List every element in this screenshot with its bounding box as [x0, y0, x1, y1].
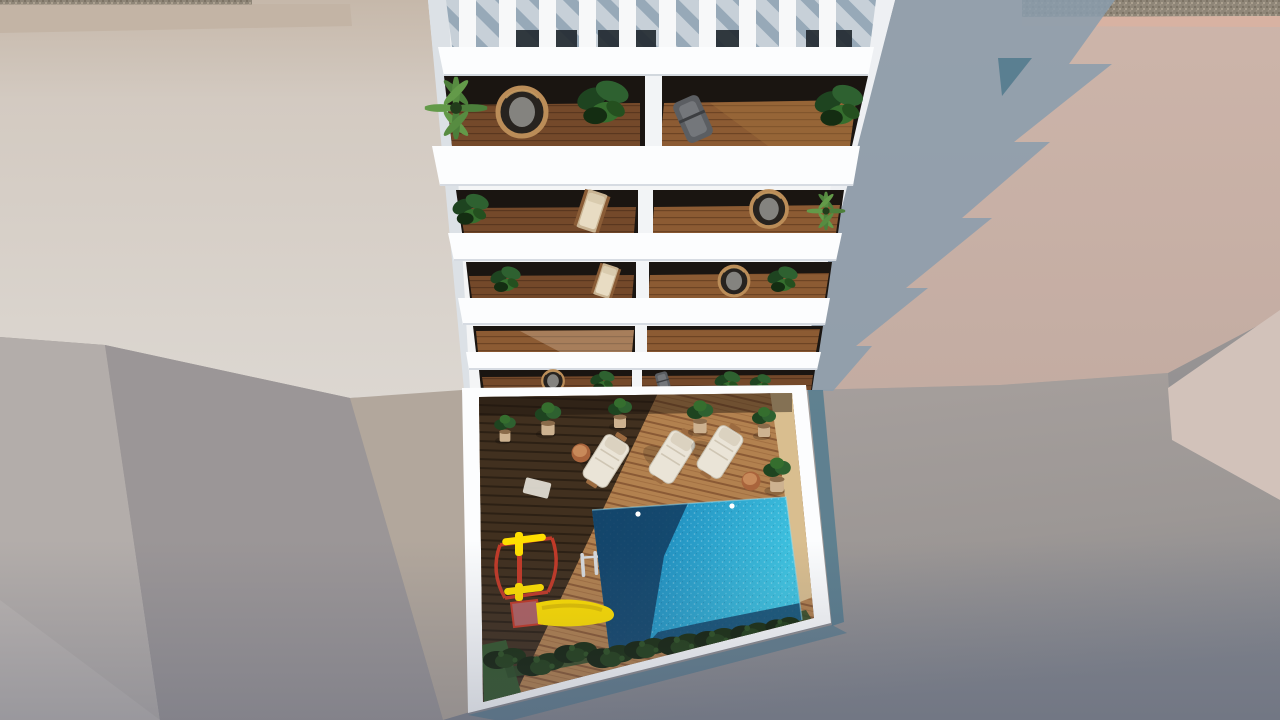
unit-partition	[635, 326, 647, 352]
balcony-slab	[458, 298, 830, 325]
pergola	[438, 0, 876, 76]
side-table	[572, 444, 591, 463]
unit-partition	[636, 262, 649, 298]
rattan-chair	[751, 191, 787, 227]
unit-partition	[638, 190, 653, 233]
balcony-slab	[432, 146, 860, 186]
rooftop-gravel-strip	[0, 0, 252, 5]
pool-light	[635, 511, 640, 516]
balcony-row-2	[448, 188, 846, 261]
balcony-slab	[466, 352, 821, 370]
rattan-chair	[719, 266, 749, 296]
balcony-deck	[644, 329, 820, 352]
scene-render	[0, 0, 1280, 720]
pool-light	[729, 503, 734, 508]
rattan-chair	[498, 88, 546, 136]
balcony-row-4	[466, 326, 823, 370]
balcony-slab	[448, 233, 842, 261]
unit-partition	[645, 76, 662, 146]
render-viewport	[0, 0, 1280, 720]
balcony-row-1	[424, 76, 869, 187]
balcony-deck	[460, 207, 636, 233]
rooftop-plane	[0, 0, 470, 398]
side-table	[742, 472, 761, 491]
pergola-beam	[438, 47, 874, 76]
left-rooftop	[0, 0, 470, 398]
vignette-overlay	[0, 540, 1280, 720]
balcony-row-3	[458, 262, 832, 325]
